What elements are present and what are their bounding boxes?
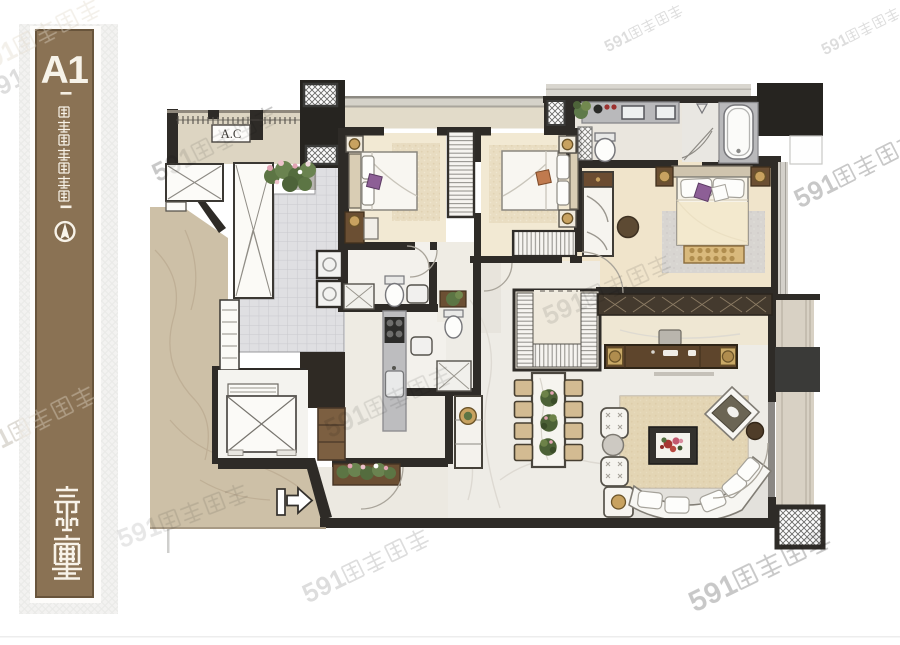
svg-text:A1: A1: [41, 49, 89, 92]
